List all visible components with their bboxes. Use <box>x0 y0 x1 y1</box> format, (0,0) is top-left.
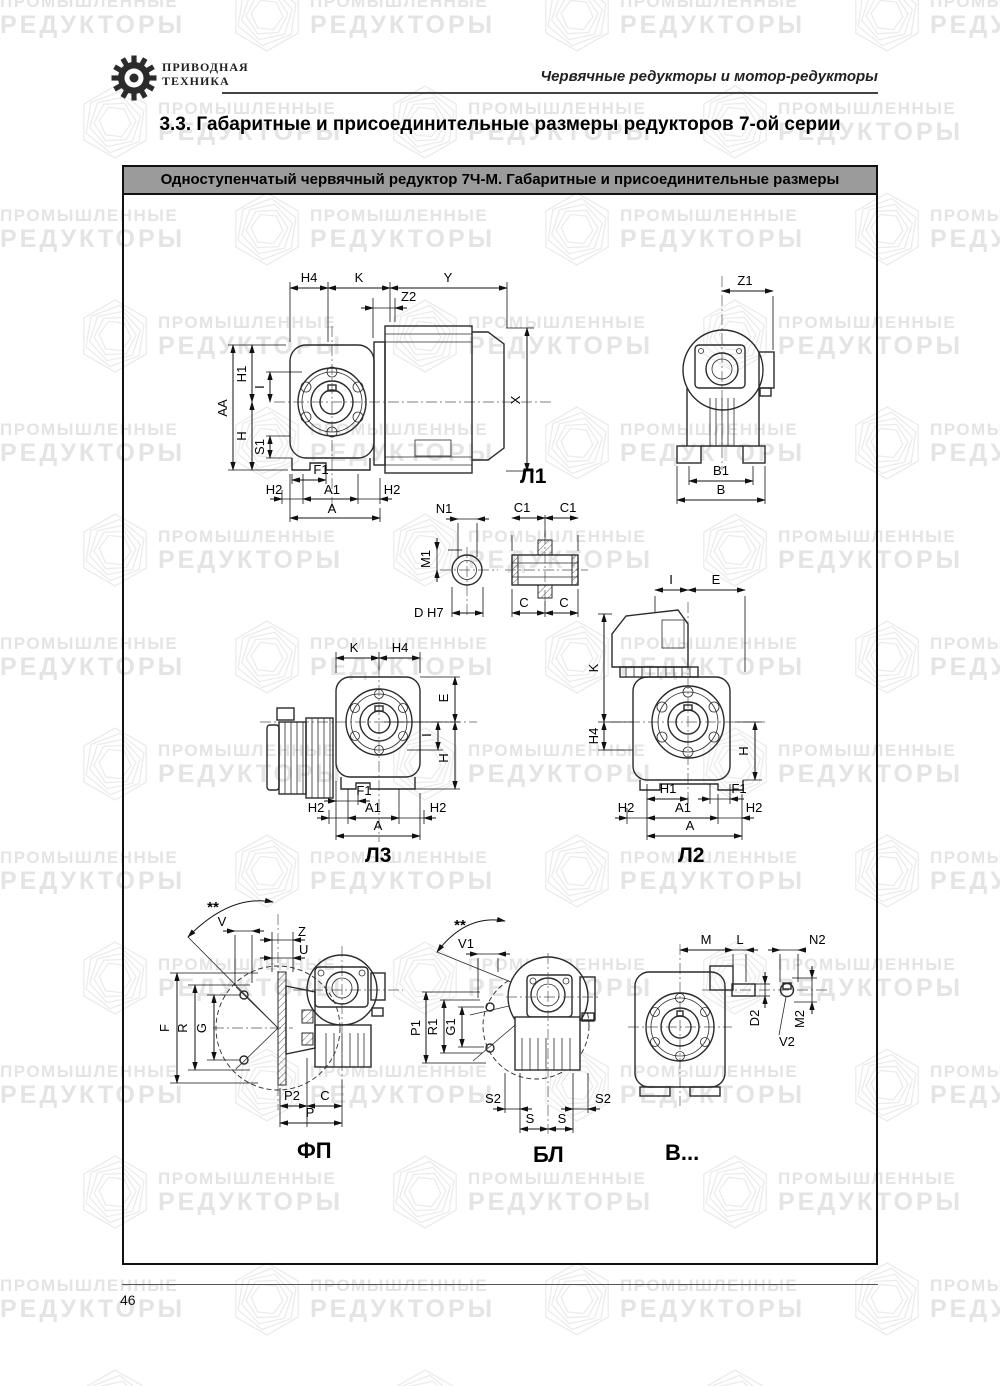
dim-label-m2: M2 <box>792 1010 807 1028</box>
caption-v: В... <box>665 1140 699 1165</box>
dim-label-b1: B1 <box>713 463 729 478</box>
dim-label-h: H <box>736 746 751 755</box>
dim-label-h: H <box>436 753 451 762</box>
dim-label-s2r: S2 <box>595 1091 611 1106</box>
catalog-page: ПРОМЫШЛЕННЫЕРЕДУКТОРЫПРОМЫШЛЕННЫЕРЕДУКТО… <box>0 0 1000 1386</box>
dim-label-h4: H4 <box>586 728 601 745</box>
dim-label-p2: P2 <box>284 1088 300 1103</box>
dim-label-u: U <box>299 942 308 957</box>
dim-label-sr: S <box>558 1111 567 1126</box>
rear-outline <box>677 330 774 463</box>
dim-label-n1: N1 <box>436 501 453 516</box>
dim-label-l: L <box>736 932 743 947</box>
caption-l2: Л2 <box>678 844 704 867</box>
dim-label-p1: P1 <box>408 1020 423 1036</box>
dim-label-d2: D2 <box>747 1010 762 1027</box>
dim-label-y: Y <box>444 270 453 285</box>
fp-dimensions: ** V Z U F R <box>157 899 342 1127</box>
l3-motor-outline <box>267 708 333 798</box>
dim-label-h: H <box>234 431 249 440</box>
caption-bl: БЛ <box>533 1142 564 1167</box>
dim-label-z: Z <box>298 924 306 939</box>
section-banner: Одноступенчатый червячный редуктор 7Ч-М.… <box>124 167 876 195</box>
dim-label-r: R <box>175 1023 190 1032</box>
dim-label-g1: G1 <box>443 1018 458 1035</box>
dim-label-v2: V2 <box>779 1034 795 1049</box>
dim-label-f1: F1 <box>313 462 328 477</box>
dim-label-r1: R1 <box>425 1019 440 1036</box>
dim-label-cr: C <box>559 595 568 610</box>
dim-label-f: F <box>157 1024 172 1032</box>
caption-l1: Л1 <box>520 465 547 488</box>
dim-label-k: K <box>350 640 359 655</box>
dim-label-h1: H1 <box>234 366 249 383</box>
dim-label-v1: V1 <box>458 936 474 951</box>
l1-centerlines <box>274 326 554 510</box>
dim-label-m1: M1 <box>418 550 433 568</box>
page-number: 46 <box>120 1292 136 1308</box>
dim-label-a: A <box>374 818 383 833</box>
dim-label-h2r: H2 <box>384 482 401 497</box>
bushing-outline <box>505 533 588 605</box>
footer-rule <box>122 1284 878 1285</box>
dim-label-a1: A1 <box>324 482 340 497</box>
gear-logo-icon <box>110 54 158 102</box>
dim-label-s2l: S2 <box>485 1091 501 1106</box>
dim-label-v: V <box>218 914 227 929</box>
drawing-v: M L N2 D2 M2 V2 <box>632 918 890 1168</box>
drawing-l2: I E K H4 H H1 F1 <box>590 572 890 864</box>
dim-label-x: X <box>508 395 523 404</box>
dim-label-g: G <box>194 1023 209 1033</box>
l3-gearbox-outline <box>336 677 420 789</box>
dim-label-h2l: H2 <box>266 482 283 497</box>
dim-label-aa: AA <box>215 399 230 417</box>
logo-line1: ПРИВОДНАЯ <box>162 60 249 74</box>
page-content: ПРИВОДНАЯ ТЕХНИКА Червячные редукторы и … <box>0 0 1000 1386</box>
dim-label-z1: Z1 <box>737 273 752 288</box>
v-dimensions: M L N2 D2 M2 V2 <box>680 932 826 1049</box>
dim-label-i: I <box>252 385 267 389</box>
l2-dimensions: I E K H4 H H1 F1 <box>586 572 762 840</box>
dim-label-e: E <box>712 572 721 587</box>
dim-label-k: K <box>586 663 601 672</box>
l1-motor-outline <box>374 326 504 473</box>
dim-label-d: D H7 <box>414 605 444 620</box>
dim-label-i: I <box>419 733 434 737</box>
dim-label-a: A <box>328 501 337 516</box>
drawing-fp: ** V Z U F R <box>158 888 428 1180</box>
dim-label-b: B <box>717 482 726 497</box>
dim-label-h1: H1 <box>660 781 677 796</box>
dim-label-p: P <box>306 1105 315 1120</box>
header-tagline: Червячные редукторы и мотор-редукторы <box>540 68 878 85</box>
dim-label-f1: F1 <box>731 781 746 796</box>
logo-text: ПРИВОДНАЯ ТЕХНИКА <box>162 60 249 88</box>
l2-motor-outline <box>612 610 698 677</box>
dim-label-h4: H4 <box>301 270 318 285</box>
dim-label-cl: C <box>519 595 528 610</box>
v-gearbox-outline <box>635 966 755 1096</box>
dim-label-i: I <box>669 572 673 587</box>
drawing-l3: K H4 E I H F1 <box>252 630 500 870</box>
shaft-end-outline <box>440 547 498 617</box>
dim-label-a1: A1 <box>365 800 381 815</box>
drawing-bl: ** V1 P1 R1 G1 S2 <box>418 898 658 1190</box>
dim-label-s1: S1 <box>252 439 267 455</box>
dim-label-a1: A1 <box>675 800 691 815</box>
fp-gearbox-outline <box>286 955 385 1067</box>
dim-label-c: C <box>320 1088 329 1103</box>
dim-label-a: A <box>686 818 695 833</box>
dim-label-c1l: C1 <box>514 500 531 515</box>
dim-label-h2l: H2 <box>308 800 325 815</box>
dim-label-n2: N2 <box>809 932 826 947</box>
page-title: 3.3. Габаритные и присоединительные разм… <box>0 114 1000 136</box>
caption-fp: ФП <box>297 1138 332 1163</box>
dim-label-c1r: C1 <box>560 500 577 515</box>
dim-label-z2: Z2 <box>401 289 416 304</box>
dim-label-f1: F1 <box>356 783 371 798</box>
dim-label-h2r: H2 <box>746 800 763 815</box>
logo-line2: ТЕХНИКА <box>162 74 230 88</box>
drawing-l1: H4 K Y Z2 X AA H1 I H <box>222 268 557 526</box>
dim-label-h2l: H2 <box>618 800 635 815</box>
dim-label-h2r: H2 <box>430 800 447 815</box>
drawing-rear-view: Z1 B1 B <box>668 270 798 520</box>
dim-label-e: E <box>436 693 451 702</box>
dim-label-stars: ** <box>454 917 466 934</box>
dim-label-k: K <box>355 270 364 285</box>
dim-label-m: M <box>701 932 712 947</box>
dim-label-h4: H4 <box>392 640 409 655</box>
header-rule <box>222 92 878 94</box>
dim-label-sl: S <box>526 1111 535 1126</box>
caption-l3: Л3 <box>365 844 391 867</box>
